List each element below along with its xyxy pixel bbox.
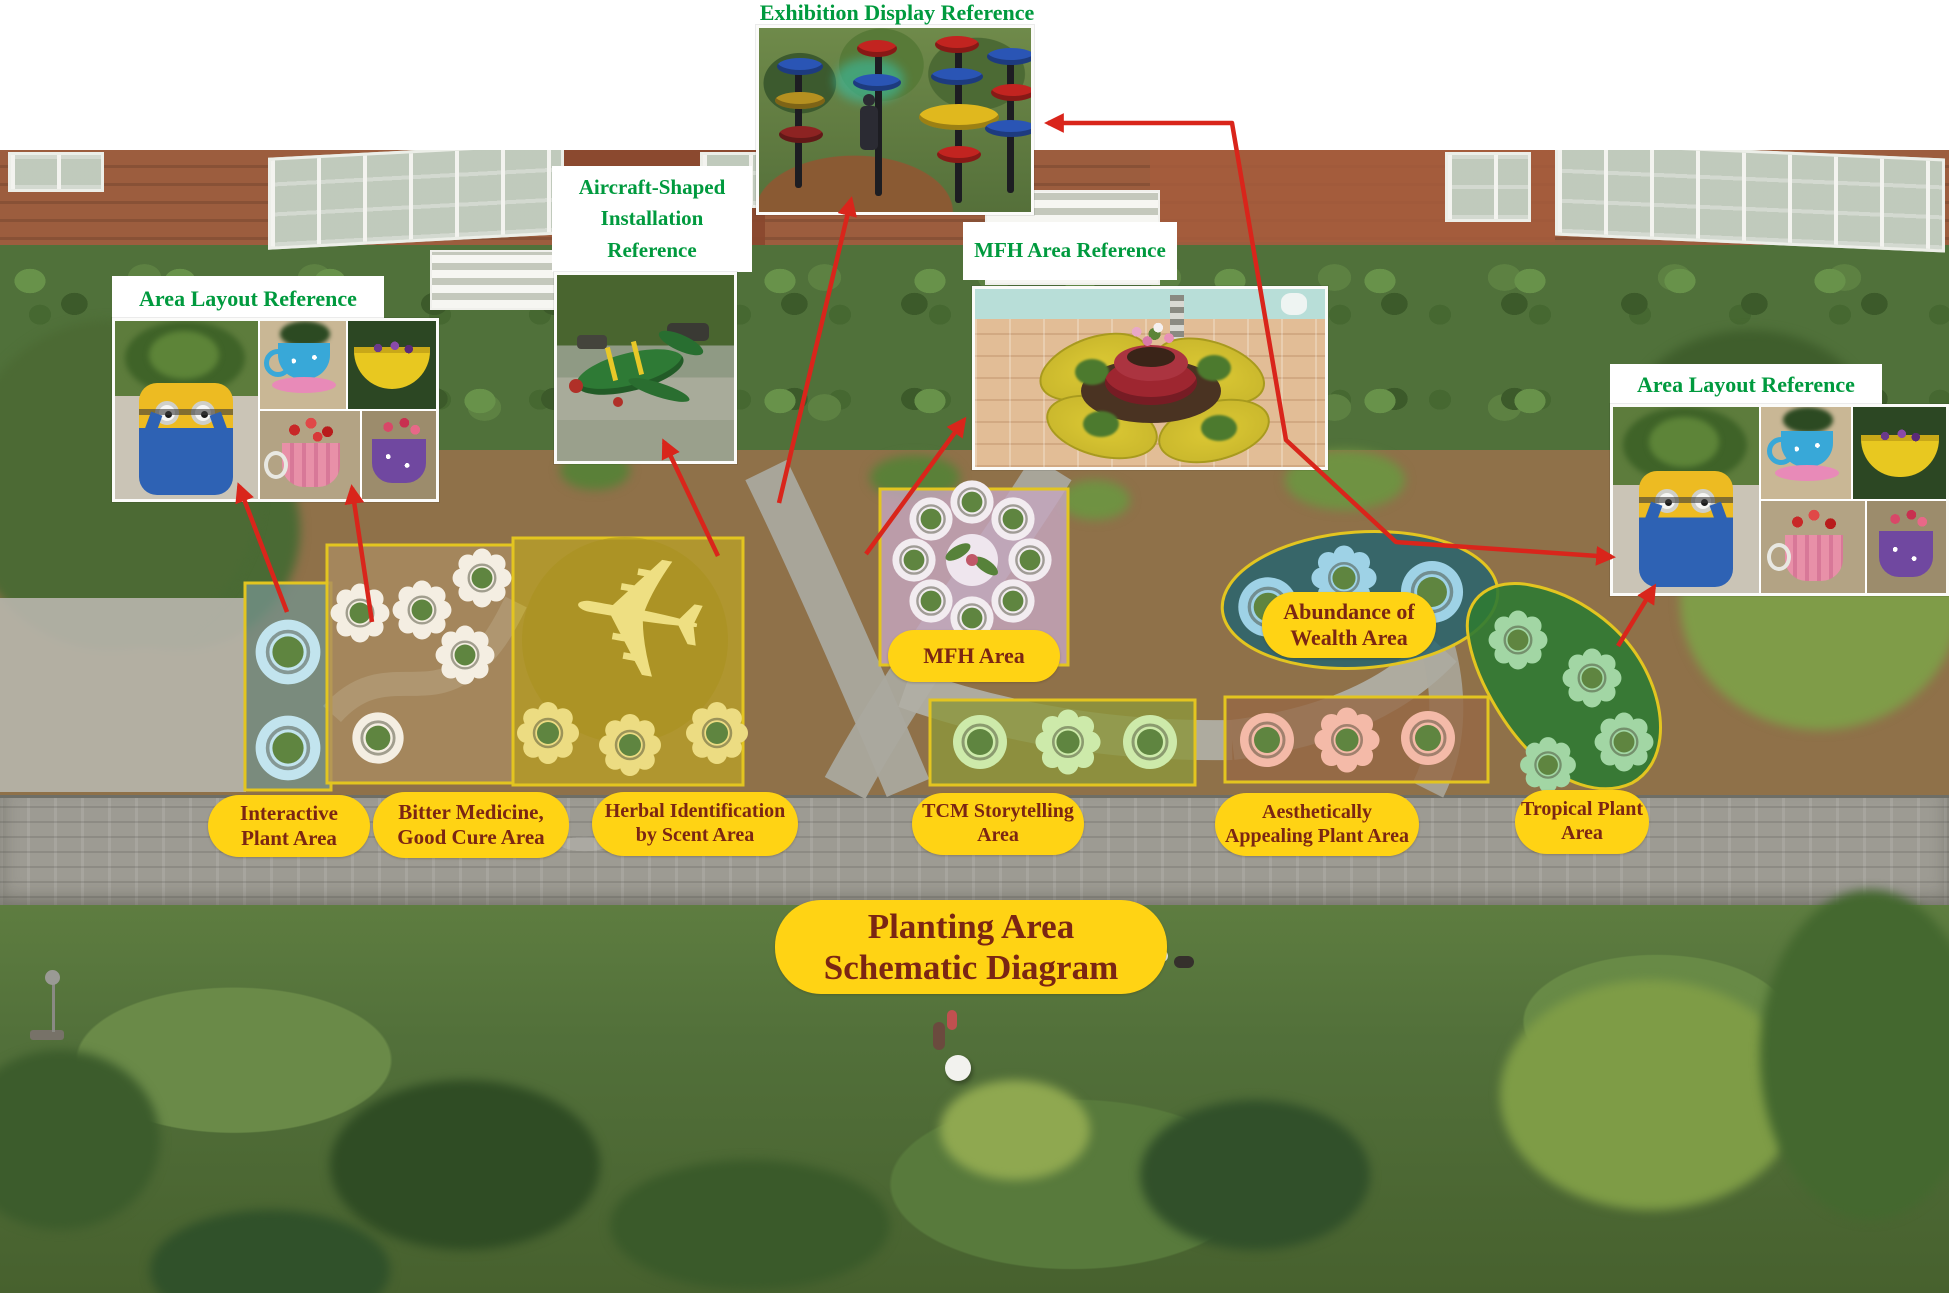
teacup-saucer (1775, 465, 1839, 481)
area-layout-reference-left-title: Area Layout Reference (112, 276, 384, 320)
pill-line: Appealing Plant Area (1225, 825, 1409, 849)
exhibition-display-reference-title: Exhibition Display Reference (757, 0, 1037, 24)
area-layout-reference-left-collage (112, 318, 439, 502)
flower-cluster (278, 413, 344, 447)
overall-strap (144, 412, 163, 437)
interactive-plant-area-pill: Interactive Plant Area (208, 795, 370, 857)
tire-planter-blue (987, 48, 1034, 65)
pill-line: Area (1561, 822, 1603, 846)
purple-planter (1879, 531, 1933, 577)
tire-planter-blue (853, 74, 901, 91)
overall-strap (210, 412, 229, 437)
overall-strap (1710, 502, 1729, 527)
abundance-line1: Abundance of (1283, 599, 1414, 625)
pill-line: Tropical Plant (1521, 798, 1643, 822)
person-head (863, 94, 875, 106)
herbal-identification-area-pill: Herbal Identification by Scent Area (592, 792, 798, 856)
minion-planter-photo (1613, 407, 1759, 593)
topiary-plane-wheel (613, 397, 623, 407)
purple-planter (372, 439, 426, 483)
bitter-medicine-area-shape (327, 545, 513, 783)
minion-tire-body (1639, 471, 1733, 587)
aircraft-ref-line1: Aircraft-Shaped (579, 172, 726, 204)
pink-planter-photo (1761, 501, 1865, 593)
yellow-bowl-planter-photo (348, 321, 436, 409)
area-layout-left-label: Area Layout Reference (139, 282, 357, 315)
aircraft-installation-reference-title: Aircraft-Shaped Installation Reference (552, 166, 752, 272)
flower-cluster (1879, 505, 1933, 533)
abundance-of-wealth-plan-label: Abundance of Wealth Area (1262, 592, 1436, 658)
area-layout-reference-right-title: Area Layout Reference (1610, 364, 1882, 404)
aircraft-ref-line2: Installation (601, 203, 704, 235)
plant-tuft (1083, 411, 1119, 437)
tire-planter-red (991, 84, 1034, 101)
pill-line: Herbal Identification (605, 800, 786, 824)
tcm-storytelling-area-shape (930, 700, 1195, 785)
exhibition-display-photo (756, 25, 1034, 215)
planting-area-schematic-figure: ✈ (0, 0, 1949, 1293)
herbal-identification-area-shape: ✈ (513, 515, 748, 785)
tire-planter-blue (931, 68, 983, 85)
minion-planter-photo (115, 321, 258, 499)
diagram-title-pill: Planting Area Schematic Diagram (775, 900, 1167, 994)
tire-planter-yellow (775, 92, 825, 109)
pill-line: Interactive (240, 801, 338, 826)
tire-planter-blue (985, 120, 1034, 137)
person-body (860, 106, 878, 150)
plant-tuft (1201, 415, 1237, 441)
overall-strap (1644, 502, 1663, 527)
flower-cluster (1781, 505, 1847, 539)
plant-foliage (1783, 407, 1833, 433)
topiary-plane-nose (569, 379, 583, 393)
mfh-ref-label: MFH Area Reference (974, 235, 1166, 267)
teacup-planter-photo (1761, 407, 1851, 499)
pink-planter-photo (260, 411, 360, 499)
pill-line: TCM Storytelling (922, 800, 1074, 824)
flower-cluster (372, 413, 426, 441)
teacup-handle (1767, 437, 1795, 465)
pink-planter (282, 443, 340, 487)
pill-line: Area (977, 824, 1019, 848)
pill-line: Bitter Medicine, (398, 800, 543, 825)
mfh-area-plan-label-text: MFH Area (923, 643, 1025, 669)
pill-line: by Scent Area (636, 824, 755, 848)
flower-cluster (1871, 425, 1927, 447)
pill-line: Aesthetically (1262, 801, 1372, 825)
pill-line: Plant Area (241, 826, 337, 851)
planter-handle (1767, 543, 1791, 571)
planter-handle (264, 451, 288, 479)
tropical-plant-area-shape (1467, 583, 1660, 792)
aircraft-installation-photo (554, 272, 737, 464)
tire-planter-darkred (779, 126, 823, 143)
yellow-bowl-planter-photo (1853, 407, 1946, 499)
plant-tuft (1075, 359, 1109, 385)
area-layout-right-label: Area Layout Reference (1637, 368, 1855, 401)
mfh-area-plan-label: MFH Area (888, 630, 1060, 682)
abundance-line2: Wealth Area (1290, 625, 1408, 651)
purple-planter-photo (1867, 501, 1946, 593)
background-car (577, 335, 607, 349)
plant-foliage (149, 331, 219, 379)
tire-planter-blue (777, 58, 823, 75)
diagram-title-line2: Schematic Diagram (824, 947, 1119, 988)
tire-planter-red (935, 36, 979, 53)
plant-tuft (1197, 355, 1231, 381)
flower-cluster (1115, 315, 1187, 357)
bitter-medicine-area-pill: Bitter Medicine, Good Cure Area (373, 792, 569, 858)
teacup-handle (264, 349, 292, 377)
tire-planter-red (937, 146, 981, 163)
flower-cluster (364, 337, 420, 359)
mfh-area-reference-photo (972, 286, 1328, 470)
plant-foliage (1649, 417, 1719, 467)
aesthetic-plant-area-shape (1225, 697, 1488, 782)
tire-planter-red (857, 40, 897, 57)
background-object (1281, 293, 1307, 315)
aesthetic-plant-area-pill: Aesthetically Appealing Plant Area (1215, 793, 1419, 856)
tropical-plant-area-pill: Tropical Plant Area (1515, 790, 1649, 854)
minion-tire-body (139, 383, 233, 495)
pill-line: Good Cure Area (397, 825, 544, 850)
mfh-area-reference-title: MFH Area Reference (963, 222, 1177, 280)
purple-planter-photo (362, 411, 436, 499)
area-layout-reference-right-collage (1610, 404, 1949, 596)
aircraft-ref-line3: Reference (607, 235, 696, 267)
interactive-plant-area-shape (245, 583, 331, 790)
teacup-planter-photo (260, 321, 346, 409)
teacup-saucer (272, 377, 336, 393)
tcm-storytelling-area-pill: TCM Storytelling Area (912, 793, 1084, 855)
diagram-title-line1: Planting Area (868, 906, 1074, 947)
pink-planter (1785, 535, 1843, 581)
